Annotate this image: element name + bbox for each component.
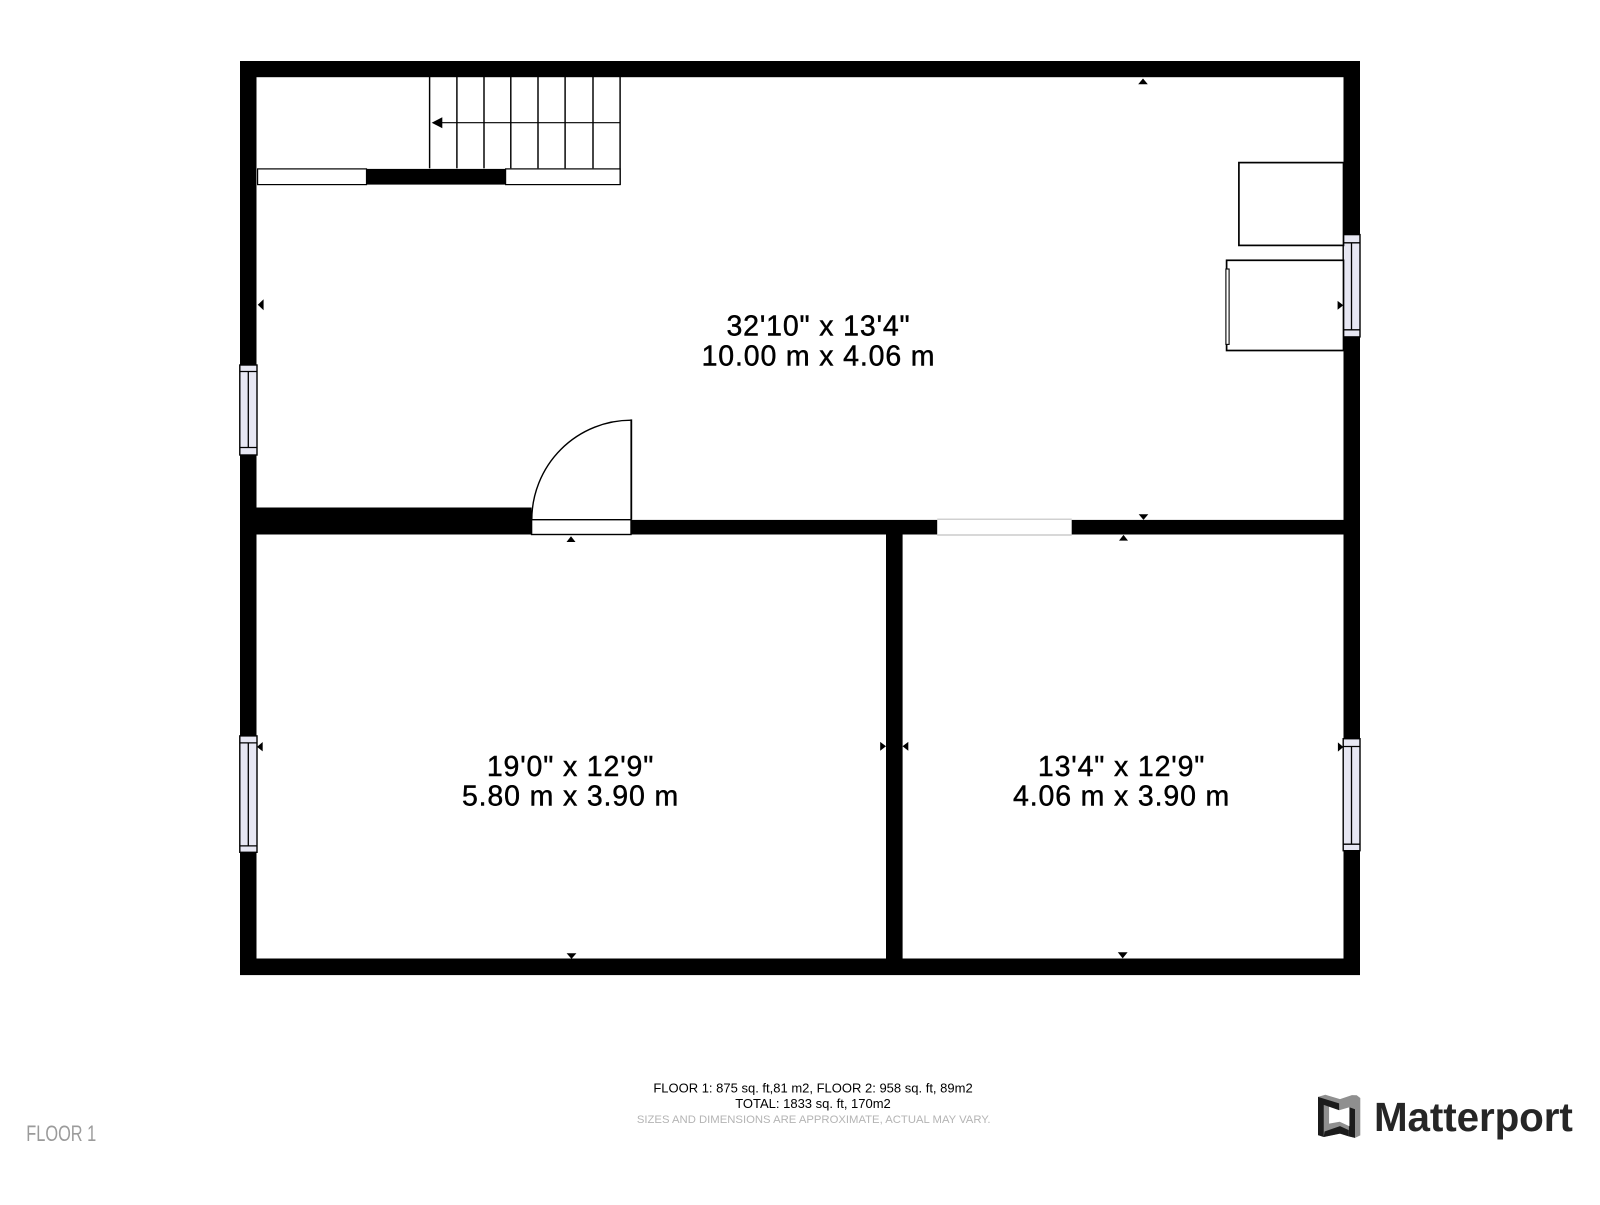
svg-text:32'10" x 13'4": 32'10" x 13'4"	[726, 311, 910, 343]
svg-text:Matterport: Matterport	[1374, 1094, 1573, 1140]
svg-text:TOTAL: 1833 sq. ft, 170m2: TOTAL: 1833 sq. ft, 170m2	[735, 1096, 891, 1111]
svg-text:FLOOR 1: FLOOR 1	[26, 1123, 96, 1147]
svg-text:FLOOR 1: 875 sq. ft,81 m2, FLO: FLOOR 1: 875 sq. ft,81 m2, FLOOR 2: 958 …	[653, 1080, 972, 1095]
svg-text:SIZES AND DIMENSIONS ARE APPRO: SIZES AND DIMENSIONS ARE APPROXIMATE, AC…	[637, 1114, 991, 1126]
svg-text:4.06 m x 3.90 m: 4.06 m x 3.90 m	[1013, 781, 1230, 813]
svg-text:13'4" x 12'9": 13'4" x 12'9"	[1038, 751, 1205, 783]
svg-text:10.00 m x 4.06 m: 10.00 m x 4.06 m	[702, 340, 936, 372]
svg-text:5.80 m x 3.90 m: 5.80 m x 3.90 m	[462, 781, 679, 813]
svg-text:19'0" x 12'9": 19'0" x 12'9"	[487, 751, 654, 783]
